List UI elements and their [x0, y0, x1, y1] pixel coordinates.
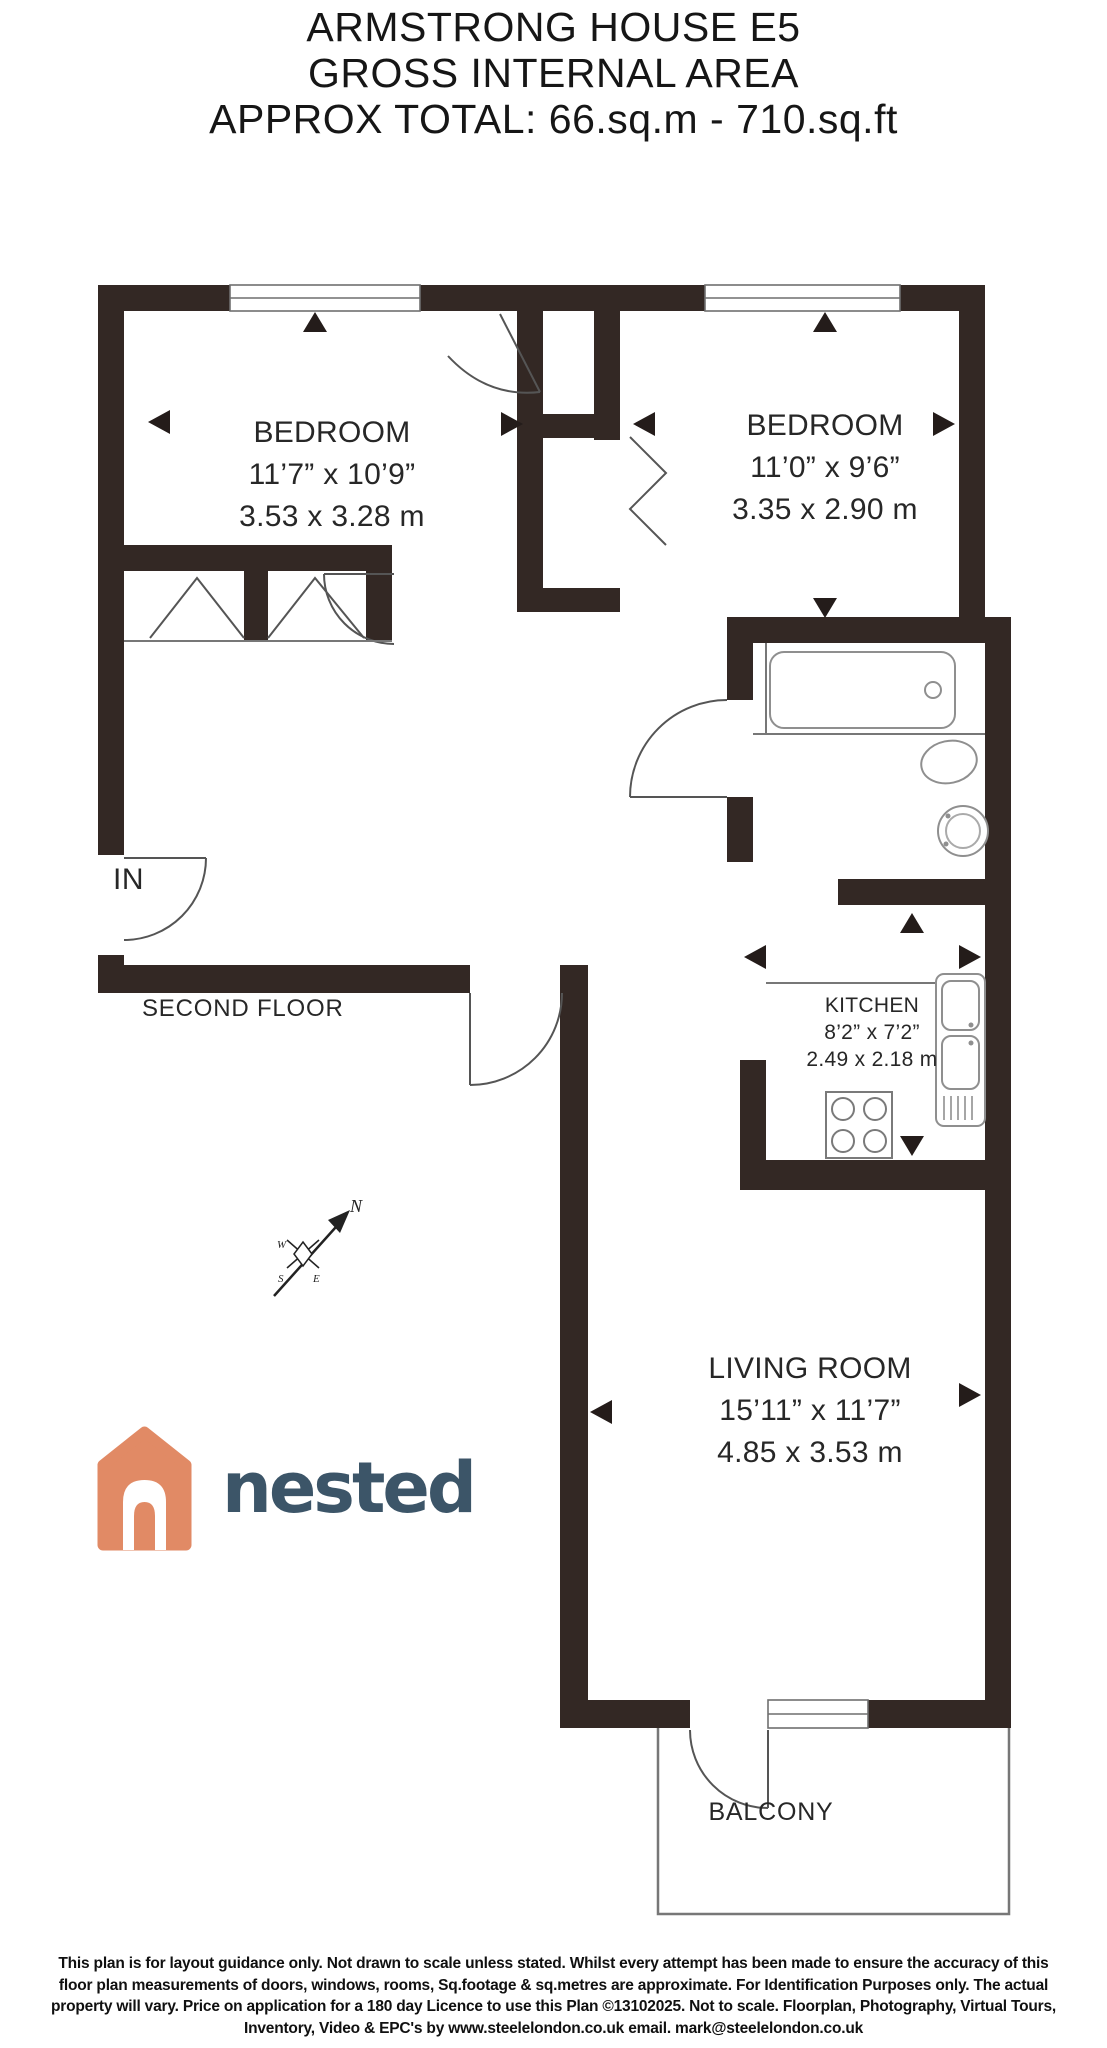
nested-logo-text: nested: [222, 1449, 474, 1527]
balcony-label: BALCONY: [691, 1798, 851, 1826]
disclaimer-line: This plan is for layout guidance only. N…: [0, 1953, 1107, 1975]
wall: [727, 643, 753, 700]
wall: [838, 879, 985, 905]
sink-basin: [938, 806, 988, 856]
bathtub-drain: [925, 682, 941, 698]
doors-layer: [124, 314, 768, 1808]
compass-south-label: S: [278, 1273, 284, 1285]
bathtub: [770, 652, 955, 728]
disclaimer-line: property will vary. Price on application…: [0, 1996, 1107, 2018]
entrance-label: IN: [113, 866, 144, 894]
room-size-imperial: 15’11” x 11’7”: [660, 1390, 960, 1432]
arrow-left-icon: [633, 412, 655, 436]
window: [705, 285, 900, 311]
living-room-label: LIVING ROOM 15’11” x 11’7” 4.85 x 3.53 m: [660, 1348, 960, 1474]
wall: [740, 1160, 985, 1190]
disclaimer-line: Inventory, Video & EPC's by www.steelelo…: [0, 2018, 1107, 2040]
room-size-imperial: 8’2” x 7’2”: [792, 1019, 952, 1046]
window: [230, 285, 420, 311]
window: [768, 1700, 868, 1728]
arrow-down-icon: [900, 1136, 924, 1156]
bathroom-door: [630, 700, 727, 797]
compass-east-label: E: [312, 1273, 320, 1285]
room-size-metric: 4.85 x 3.53 m: [660, 1432, 960, 1474]
disclaimer-line: floor plan measurements of doors, window…: [0, 1975, 1107, 1997]
toilet: [917, 736, 981, 789]
wall: [244, 571, 268, 641]
room-size-imperial: 11’0” x 9’6”: [675, 447, 975, 489]
disclaimer-text: This plan is for layout guidance only. N…: [0, 1953, 1107, 2039]
arrow-right-icon: [959, 1383, 981, 1407]
living-room-door: [470, 993, 562, 1085]
arrow-left-icon: [744, 945, 766, 969]
balcony-door: [690, 1730, 768, 1808]
wall: [517, 588, 620, 612]
wall: [985, 617, 1011, 1728]
wall: [366, 545, 392, 641]
room-size-metric: 2.49 x 2.18 m: [792, 1046, 952, 1073]
wall: [727, 617, 1011, 643]
compass-icon: N W S E: [274, 1196, 363, 1296]
closet-bifold-door: [630, 437, 666, 545]
wall: [740, 1060, 766, 1160]
room-size-imperial: 11’7” x 10’9”: [182, 454, 482, 496]
wall: [560, 1700, 690, 1728]
room-size-metric: 3.35 x 2.90 m: [675, 489, 975, 531]
arrow-right-icon: [959, 945, 981, 969]
room-size-metric: 3.53 x 3.28 m: [182, 496, 482, 538]
room-name: BEDROOM: [182, 412, 482, 454]
room-name: KITCHEN: [792, 992, 952, 1019]
nested-logo-icon: [103, 1432, 186, 1550]
wall: [98, 965, 470, 993]
compass-north-label: N: [349, 1196, 363, 1216]
arrow-left-icon: [148, 410, 170, 434]
room-name: BEDROOM: [675, 405, 975, 447]
arrow-down-icon: [813, 598, 837, 618]
arrow-up-icon: [813, 312, 837, 332]
wall: [868, 1700, 1011, 1728]
stove-hob: [826, 1092, 892, 1158]
wall: [420, 285, 705, 311]
compass-west-label: W: [277, 1239, 287, 1251]
floorplan-page: ARMSTRONG HOUSE E5 GROSS INTERNAL AREA A…: [0, 0, 1107, 2048]
wall: [124, 545, 390, 571]
floor-level-label: SECOND FLOOR: [142, 995, 344, 1023]
wall: [98, 285, 124, 855]
arrow-up-icon: [900, 913, 924, 933]
wall: [727, 797, 753, 862]
wall: [560, 965, 588, 1728]
bedroom2-label: BEDROOM 11’0” x 9’6” 3.35 x 2.90 m: [675, 405, 975, 531]
arrow-left-icon: [590, 1400, 612, 1424]
arrow-up-icon: [303, 312, 327, 332]
bedroom1-label: BEDROOM 11’7” x 10’9” 3.53 x 3.28 m: [182, 412, 482, 538]
wall: [517, 414, 620, 438]
kitchen-label: KITCHEN 8’2” x 7’2” 2.49 x 2.18 m: [792, 992, 952, 1073]
room-name: LIVING ROOM: [660, 1348, 960, 1390]
